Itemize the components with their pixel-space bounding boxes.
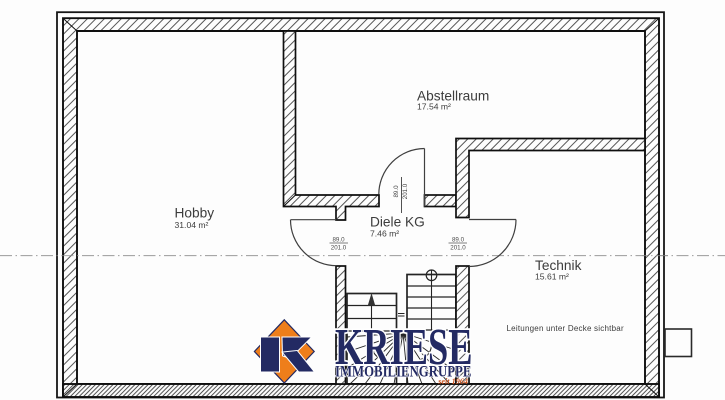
svg-text:15.61 m²: 15.61 m² <box>535 272 569 282</box>
svg-text:201.0: 201.0 <box>402 183 409 199</box>
svg-text:89.0: 89.0 <box>452 237 465 244</box>
svg-text:Diele KG: Diele KG <box>370 215 425 230</box>
svg-text:Leitungen unter Decke sichtbar: Leitungen unter Decke sichtbar <box>507 324 624 333</box>
svg-text:89.0: 89.0 <box>332 237 345 244</box>
svg-text:89.0: 89.0 <box>393 185 400 198</box>
svg-text:201.0: 201.0 <box>450 245 466 252</box>
svg-text:seit 1964: seit 1964 <box>437 377 468 386</box>
svg-text:Hobby: Hobby <box>175 205 215 220</box>
svg-text:201.0: 201.0 <box>331 245 347 252</box>
svg-text:7.46 m²: 7.46 m² <box>370 229 399 239</box>
svg-text:31.04 m²: 31.04 m² <box>175 220 209 230</box>
svg-text:17.54 m²: 17.54 m² <box>417 101 451 111</box>
